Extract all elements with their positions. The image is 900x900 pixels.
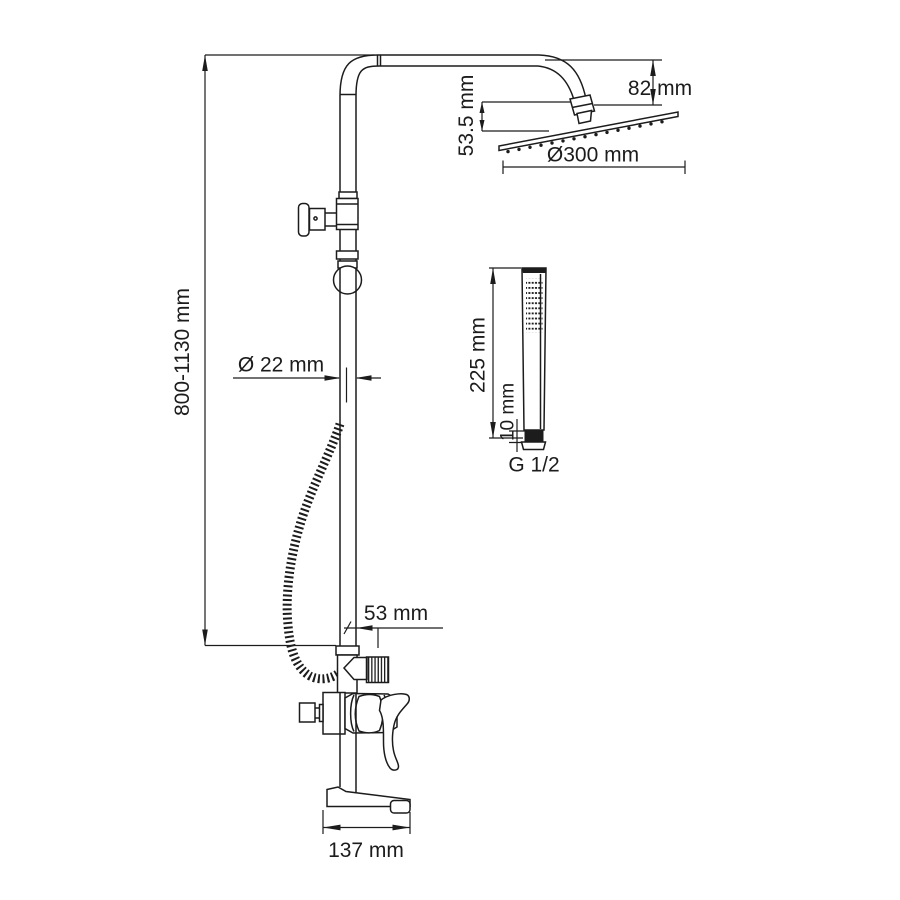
mixer-handle: [380, 694, 410, 770]
thread-size-label: G 1/2: [508, 454, 559, 477]
hand-shower-spray-face: [526, 279, 543, 334]
shower-hose: [287, 424, 344, 679]
handshower-length-label: 225 mm: [467, 317, 490, 393]
head-diameter-label: Ø300 mm: [547, 144, 639, 167]
shower-arm-fitting: [570, 95, 595, 124]
dimension-column-height: [202, 55, 374, 646]
shower-system-technical-drawing: 800-1130 mm 82 mm 53.5 mm Ø300 mm Ø 22 m…: [0, 0, 900, 900]
bath-spout: [327, 787, 410, 813]
swivel-ball-joint: [334, 251, 362, 294]
hand-shower-connector-band: [525, 430, 544, 442]
dimension-outlet-offset: [344, 622, 443, 649]
head-drop-label: 53.5 mm: [455, 75, 478, 157]
drawing-svg: 800-1130 mm 82 mm 53.5 mm Ø300 mm Ø 22 m…: [0, 0, 900, 900]
outlet-offset-label: 53 mm: [364, 602, 428, 625]
head-offset-label: 82 mm: [628, 77, 692, 100]
hand-shower-cap: [522, 268, 546, 273]
handshower-connector-label: 10 mm: [498, 383, 519, 441]
diverter-knob: [299, 192, 359, 236]
pipe-diameter-label: Ø 22 mm: [238, 354, 324, 377]
column-height-label: 800-1130 mm: [171, 288, 194, 416]
hose-outlet-connector: [336, 646, 389, 693]
dimension-head-drop: [480, 102, 578, 131]
hand-shower-thread-base: [522, 442, 546, 450]
spout-length-label: 137 mm: [328, 839, 404, 862]
